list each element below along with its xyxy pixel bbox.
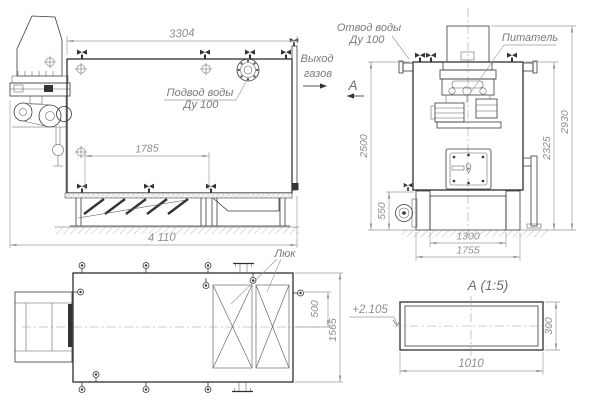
valve-top-icon bbox=[79, 263, 85, 274]
section-a-letter: А bbox=[347, 78, 357, 93]
boiler-body-plan bbox=[73, 273, 293, 382]
dim-2500-text: 2500 bbox=[358, 134, 370, 159]
safety-valve-icon bbox=[415, 53, 425, 62]
flange-stub-bottom bbox=[232, 382, 253, 392]
drain-valve-icon bbox=[206, 184, 216, 193]
gas-outlet-note: Выход газов bbox=[300, 53, 333, 89]
valve-bottom-icon bbox=[205, 382, 211, 393]
water-supply-label-line1: Подвод воды bbox=[167, 87, 234, 99]
dim-1010: 1010 bbox=[400, 352, 543, 375]
section-view-arrow-icon bbox=[347, 93, 364, 98]
hatch-note: Люк bbox=[231, 248, 296, 304]
dim-2325-text: 2325 bbox=[541, 136, 553, 161]
valve-bottom-icon bbox=[143, 382, 149, 393]
anchor-mark bbox=[200, 63, 212, 75]
door-handle bbox=[452, 166, 464, 170]
grate-bars bbox=[84, 199, 188, 214]
anchor-mark bbox=[75, 63, 87, 75]
elevation-text: +2.105 bbox=[352, 304, 388, 316]
water-return-label-line2: Ду 100 bbox=[348, 34, 386, 46]
gas-flow-arrow-icon bbox=[303, 83, 327, 88]
drain-valve-icon bbox=[404, 183, 413, 191]
down-pipe bbox=[523, 156, 541, 228]
feeder-assembly bbox=[431, 62, 501, 128]
dim-550-text: 550 bbox=[376, 202, 388, 220]
boiler-body-front bbox=[67, 59, 292, 193]
dim-300-text: 300 bbox=[543, 317, 555, 335]
flue-duct bbox=[292, 46, 297, 190]
gas-outlet-label-line1: Выход bbox=[300, 53, 333, 65]
section-outer-wall bbox=[400, 302, 543, 350]
drain-valve-icon bbox=[77, 184, 87, 193]
dim-500: 500 bbox=[296, 292, 331, 327]
dim-2930: 2930 bbox=[491, 26, 576, 230]
stoker-feeder bbox=[10, 16, 72, 193]
water-supply-note: Подвод воды Ду 100 bbox=[164, 82, 246, 111]
dim-1785-text: 1785 bbox=[135, 142, 159, 155]
dim-2930-text: 2930 bbox=[559, 110, 571, 135]
elevation-note: +2.105 bbox=[349, 304, 401, 326]
water-return-label-line1: Отвод воды bbox=[337, 22, 401, 34]
valve-inner-icon bbox=[73, 289, 84, 295]
water-return-note: Отвод воды Ду 100 bbox=[337, 22, 409, 59]
anchor-mark bbox=[75, 146, 87, 158]
hatch-covers bbox=[213, 285, 289, 368]
safety-valve-icon bbox=[200, 50, 210, 59]
dim-300: 300 bbox=[543, 302, 560, 350]
valve-inner-icon bbox=[93, 372, 99, 383]
feeder-label: Питатель bbox=[502, 32, 558, 44]
dim-3304-text: 3304 bbox=[169, 27, 195, 40]
valve-inner-icon bbox=[250, 273, 256, 284]
dim-1010-text: 1010 bbox=[458, 358, 484, 370]
dim-500-text: 500 bbox=[309, 300, 321, 318]
right-stub bbox=[523, 61, 537, 73]
side-view: 2500 550 1300 1755 2325 2930 Отво bbox=[337, 8, 576, 261]
ash-hopper bbox=[213, 198, 279, 211]
drain-valve-icon bbox=[144, 184, 154, 193]
section-a-view: А (1:5) +2.105 1010 300 bbox=[349, 278, 560, 375]
plan-view: Люк 500 1565 bbox=[15, 248, 343, 393]
dim-1755-text: 1755 bbox=[456, 245, 480, 257]
gas-outlet-label-line2: газов bbox=[304, 68, 332, 80]
dim-1565: 1565 bbox=[295, 273, 343, 382]
valve-side-icon bbox=[293, 290, 304, 296]
safety-valve-icon bbox=[507, 53, 517, 62]
section-title: А (1:5) bbox=[467, 278, 509, 293]
safety-valve-icon bbox=[77, 50, 87, 59]
front-view: 3304 1785 4 110 Подвод воды Ду 100 Выход… bbox=[10, 16, 364, 248]
dim-1785: 1785 bbox=[85, 142, 209, 190]
access-door bbox=[446, 149, 491, 189]
valve-top-icon bbox=[143, 263, 149, 274]
feeder-motor bbox=[435, 103, 464, 122]
section-centerlines bbox=[393, 296, 552, 356]
flange-stub-top bbox=[233, 264, 254, 274]
dim-2325: 2325 bbox=[525, 62, 576, 230]
water-outlet-stub bbox=[399, 61, 413, 73]
dim-1565-text: 1565 bbox=[327, 318, 339, 342]
valve-bottom-icon bbox=[79, 382, 85, 393]
base-box-side bbox=[396, 191, 521, 230]
safety-valve-icon bbox=[426, 53, 436, 62]
base-frame bbox=[65, 193, 292, 226]
duct-drain-fitting bbox=[293, 183, 299, 190]
valve-top-icon bbox=[205, 263, 211, 274]
dim-3304: 3304 bbox=[67, 27, 297, 55]
ground-front bbox=[55, 227, 299, 234]
section-a-mark: А bbox=[347, 78, 364, 99]
boiler-drawing: 3304 1785 4 110 Подвод воды Ду 100 Выход… bbox=[0, 0, 600, 400]
water-supply-label-line2: Ду 100 bbox=[182, 99, 220, 111]
safety-valve-icon bbox=[245, 50, 255, 59]
valve-inner-icon bbox=[203, 278, 209, 289]
hatch-label: Люк bbox=[273, 248, 296, 260]
water-inlet-flange bbox=[237, 59, 259, 81]
lift-point-mark bbox=[44, 56, 56, 68]
dim-1300-text: 1300 bbox=[456, 231, 480, 243]
safety-valve-icon bbox=[281, 50, 291, 59]
dim-4110-text: 4 110 bbox=[148, 231, 177, 244]
drawing-sheet: 3304 1785 4 110 Подвод воды Ду 100 Выход… bbox=[0, 0, 600, 400]
